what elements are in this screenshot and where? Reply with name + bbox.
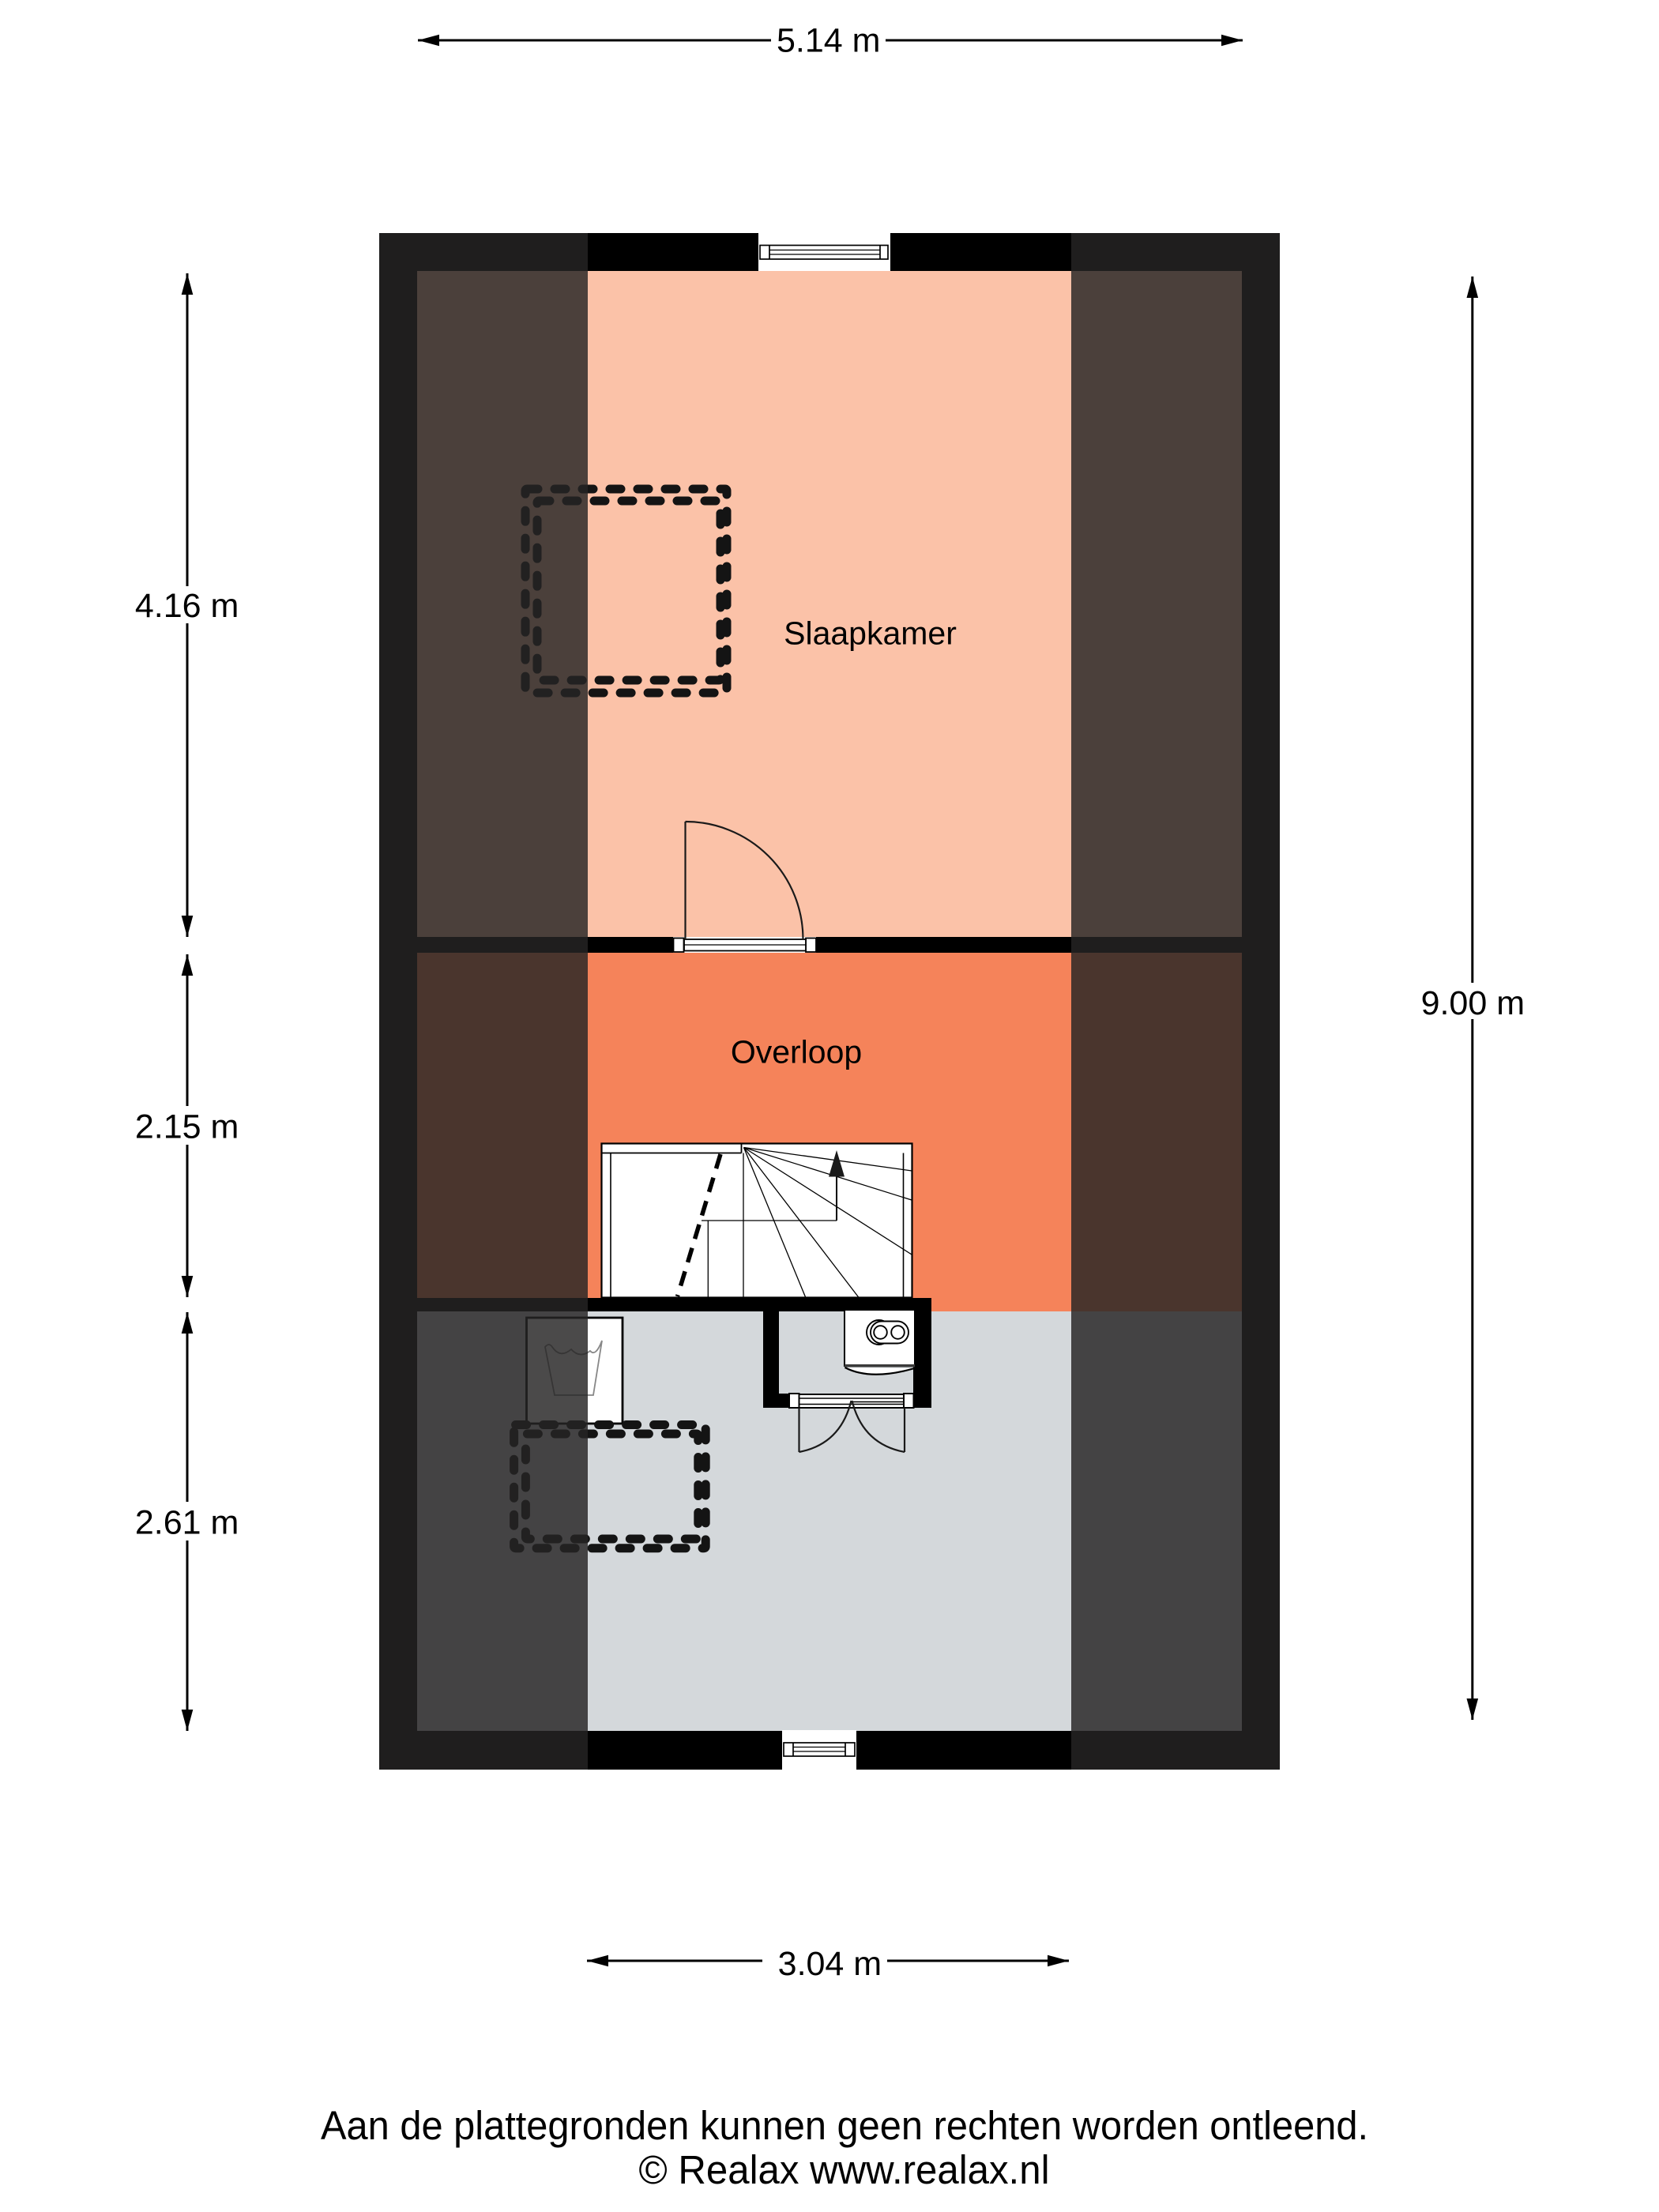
svg-text:5.14 m: 5.14 m — [777, 22, 880, 60]
svg-text:2.15 m: 2.15 m — [135, 1108, 239, 1146]
svg-text:Slaapkamer: Slaapkamer — [784, 615, 957, 652]
svg-text:4.16 m: 4.16 m — [135, 587, 239, 625]
svg-text:© Realax www.realax.nl: © Realax www.realax.nl — [639, 2147, 1050, 2192]
svg-text:9.00 m: 9.00 m — [1421, 984, 1525, 1022]
svg-text:Overloop: Overloop — [731, 1034, 862, 1070]
svg-text:Aan de plattegronden kunnen ge: Aan de plattegronden kunnen geen rechten… — [321, 2103, 1368, 2148]
svg-text:3.04 m: 3.04 m — [778, 1945, 882, 1983]
svg-text:2.61 m: 2.61 m — [135, 1504, 239, 1542]
